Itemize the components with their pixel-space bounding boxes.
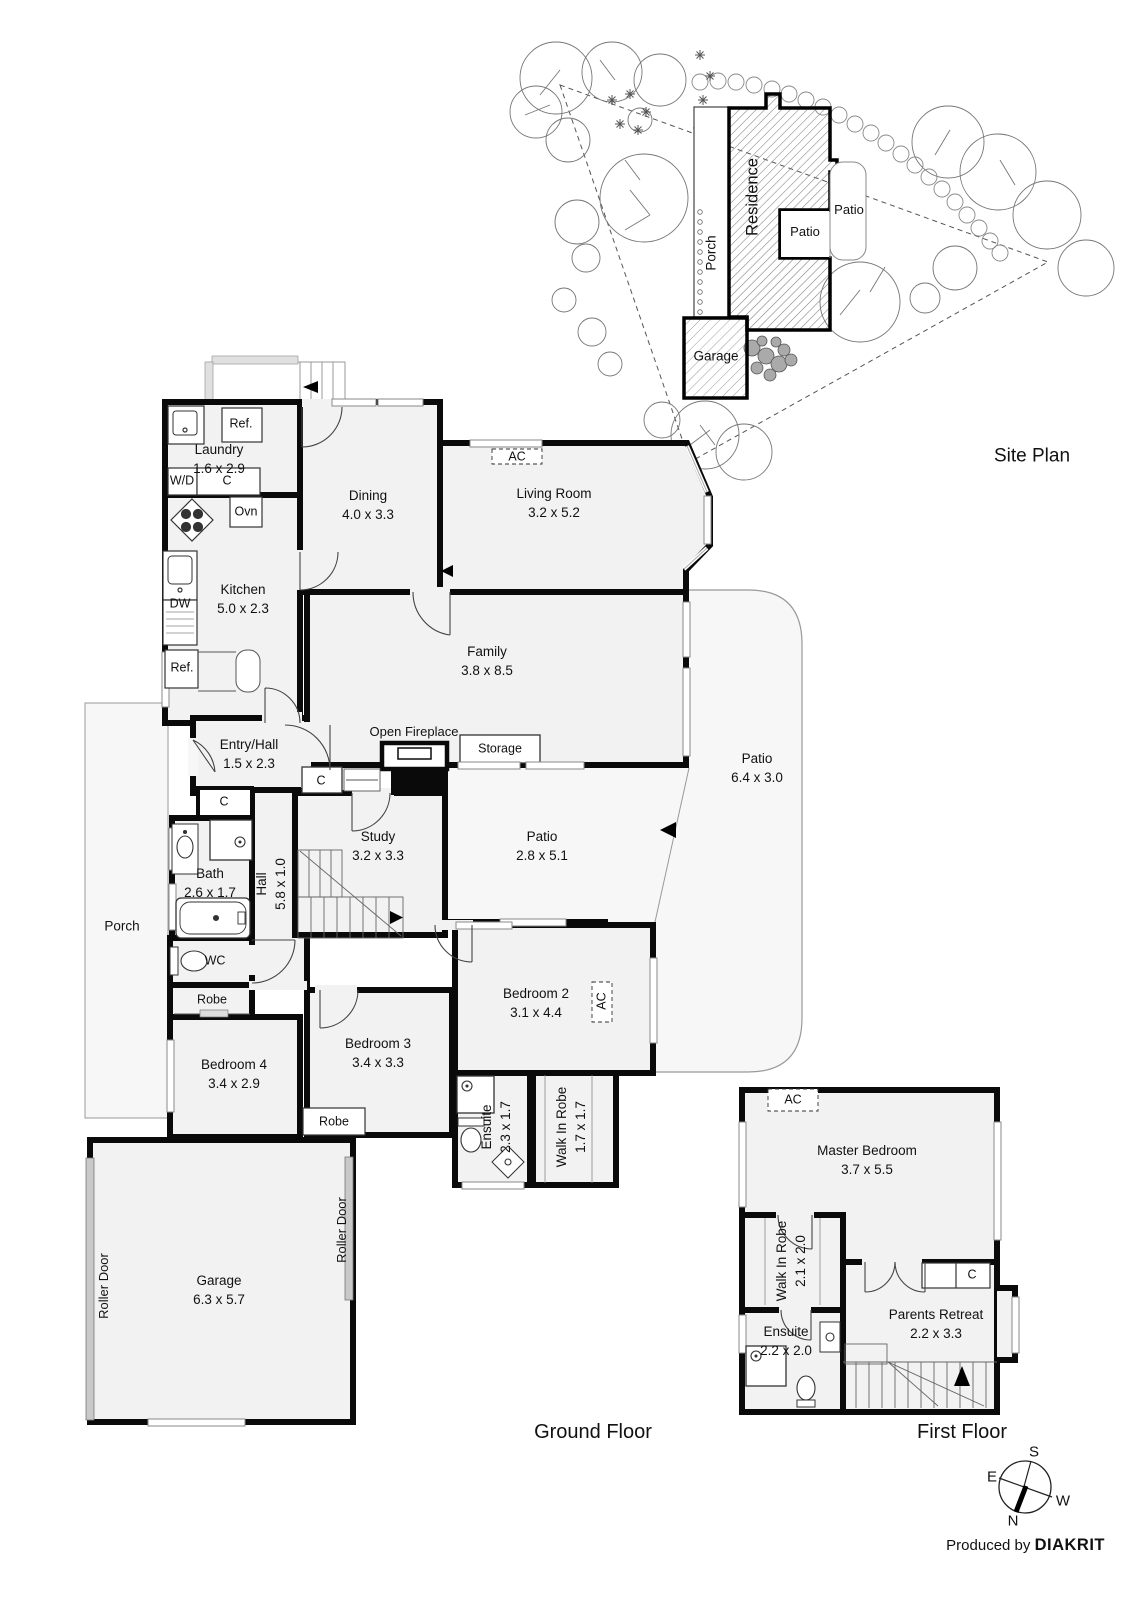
- roller-door-left-strip: [86, 1158, 94, 1420]
- room-label-ensuite-ground: Ensuite2.3 x 1.7: [478, 1101, 516, 1153]
- label-robe-hall: Robe: [197, 991, 227, 1009]
- label-ac-first: AC: [784, 1091, 801, 1109]
- ground-floor-title: Ground Floor: [534, 1418, 652, 1446]
- room-label-kitchen: Kitchen5.0 x 2.3: [217, 581, 269, 619]
- room-label-wir-ground: Walk In Robe1.7 x 1.7: [553, 1087, 591, 1168]
- compass-north: N: [1008, 1511, 1019, 1532]
- compass-icon: [999, 1461, 1052, 1513]
- label-open-fireplace: Open Fireplace: [370, 723, 459, 741]
- label-c-laundry: C: [222, 472, 231, 490]
- site-plan-title: Site Plan: [994, 444, 1070, 471]
- label-roller-door-right: Roller Door: [333, 1197, 351, 1263]
- site-patio-inner-label: Patio: [790, 223, 820, 241]
- label-ref-top: Ref.: [230, 415, 253, 433]
- room-label-patio-small: Patio2.8 x 5.1: [516, 828, 568, 866]
- room-label-family: Family3.8 x 8.5: [461, 643, 513, 681]
- compass-east: E: [987, 1467, 997, 1488]
- label-ac-bedroom2: AC: [593, 992, 611, 1009]
- footer-credit: Produced by DIAKRIT: [946, 1536, 1105, 1555]
- room-label-wir-first: Walk In Robe2.1 x 2.0: [773, 1221, 811, 1302]
- label-wd: W/D: [170, 472, 194, 490]
- floorplan-canvas: Residence Porch Patio Patio Garage Site …: [0, 0, 1131, 1600]
- compass-west: W: [1056, 1491, 1070, 1512]
- label-dw: DW: [170, 595, 191, 613]
- label-c-first: C: [967, 1266, 976, 1284]
- site-patio-outer-label: Patio: [834, 201, 864, 219]
- room-label-bath: Bath2.6 x 1.7: [184, 865, 236, 903]
- label-wc: WC: [205, 952, 226, 970]
- floorplan-drawing: [0, 0, 1131, 1600]
- label-roller-door-left: Roller Door: [95, 1253, 113, 1319]
- site-plan: [510, 42, 1114, 480]
- site-garage-label: Garage: [693, 348, 738, 367]
- room-label-patio-large: Patio6.4 x 3.0: [731, 750, 783, 788]
- room-label-ensuite-first: Ensuite2.2 x 2.0: [760, 1323, 812, 1361]
- first-floor-title: First Floor: [917, 1418, 1007, 1446]
- shrubs: [744, 336, 797, 381]
- room-label-garage: Garage6.3 x 5.7: [193, 1272, 245, 1310]
- room-label-master: Master Bedroom3.7 x 5.5: [817, 1142, 917, 1180]
- room-label-living: Living Room3.2 x 5.2: [516, 485, 591, 523]
- label-ovn: Ovn: [235, 503, 258, 521]
- room-label-parents-retreat: Parents Retreat2.2 x 3.3: [889, 1306, 984, 1344]
- label-ref-bottom: Ref.: [171, 659, 194, 677]
- room-label-hall: Hall5.8 x 1.0: [253, 858, 291, 910]
- chimney-block: [391, 769, 447, 795]
- label-c-hall: C: [219, 793, 228, 811]
- porch-area: [85, 703, 168, 1118]
- room-label-dining: Dining4.0 x 3.3: [342, 487, 394, 525]
- compass-south: S: [1029, 1442, 1039, 1463]
- room-label-entry: Entry/Hall1.5 x 2.3: [220, 736, 279, 774]
- label-ac-living: AC: [508, 448, 525, 466]
- label-storage: Storage: [478, 740, 522, 758]
- room-label-bedroom2: Bedroom 23.1 x 4.4: [503, 985, 569, 1023]
- produced-by-text: Produced by: [946, 1537, 1030, 1554]
- room-label-bedroom3: Bedroom 33.4 x 3.3: [345, 1035, 411, 1073]
- label-c-study: C: [316, 772, 325, 790]
- label-robe-bedroom3: Robe: [319, 1113, 349, 1131]
- site-porch-label: Porch: [703, 235, 722, 270]
- room-label-study: Study3.2 x 3.3: [352, 828, 404, 866]
- brand-name: DIAKRIT: [1035, 1536, 1105, 1554]
- room-label-bedroom4: Bedroom 43.4 x 2.9: [201, 1056, 267, 1094]
- room-label-laundry: Laundry1.6 x 2.9: [193, 441, 245, 479]
- site-residence-label: Residence: [741, 158, 764, 236]
- label-porch-ground: Porch: [104, 918, 139, 937]
- site-porch: [694, 107, 729, 317]
